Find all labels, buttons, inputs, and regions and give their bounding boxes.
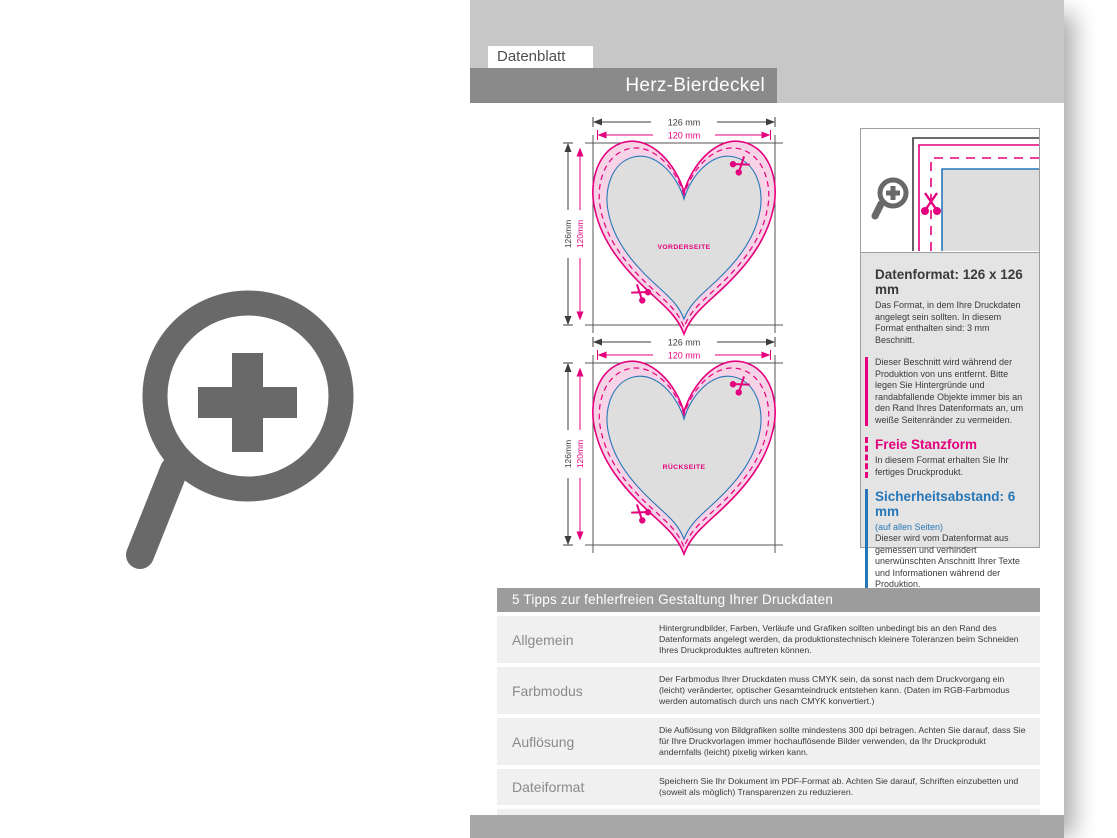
dim-width-inner-label: 120 mm [668, 131, 701, 141]
table-row: Farbmodus Der Farbmodus Ihrer Druckdaten… [497, 667, 1040, 714]
safety-heart [607, 376, 761, 539]
safety-heart [607, 156, 761, 319]
dim-height-outer-label: 126mm [563, 220, 573, 248]
tips-table: 5 Tipps zur fehlerfreien Gestaltung Ihre… [497, 588, 1040, 838]
datasheet-page: Datenblatt Herz-Bierdeckel [470, 0, 1064, 838]
zoom-plus-icon [100, 285, 360, 585]
zoom-plus-small-icon [869, 175, 913, 221]
datenblatt-tab: Datenblatt [488, 46, 593, 68]
sicherheitsabstand-note: Sicherheitsabstand: 6 mm (auf allen Seit… [865, 489, 1027, 591]
row-text: Speichern Sie Ihr Dokument im PDF-Format… [659, 769, 1040, 805]
row-label: Farbmodus [497, 683, 659, 699]
table-row: Auflösung Die Auflösung von Bildgrafiken… [497, 718, 1040, 765]
datenformat-title: Datenformat: 126 x 126 mm [875, 267, 1027, 297]
beschnitt-note: Dieser Beschnitt wird während der Produk… [865, 357, 1027, 426]
dim-height-inner-label: 120mm [575, 440, 585, 468]
back-side-label: RÜCKSEITE [663, 462, 706, 471]
tips-table-header: 5 Tipps zur fehlerfreien Gestaltung Ihre… [497, 588, 1040, 612]
corner-detail-view [861, 129, 1039, 253]
stanzform-note: Freie Stanzform In diesem Format erhalte… [865, 437, 1027, 478]
format-info-text: Datenformat: 126 x 126 mm Das Format, in… [861, 253, 1039, 547]
page-title: Herz-Bierdeckel [470, 68, 777, 103]
row-text: Der Farbmodus Ihrer Druckdaten muss CMYK… [659, 667, 1040, 714]
table-row: Dateiformat Speichern Sie Ihr Dokument i… [497, 769, 1040, 805]
row-label: Auflösung [497, 734, 659, 750]
format-info-box: Datenformat: 126 x 126 mm Das Format, in… [860, 128, 1040, 548]
row-label: Dateiformat [497, 779, 659, 795]
front-diagram: 126 mm 120 mm 126mm [555, 112, 790, 350]
datenformat-text: Das Format, in dem Ihre Druckdaten angel… [875, 300, 1027, 346]
screenshot-stage: Datenblatt Herz-Bierdeckel [0, 0, 1117, 838]
dim-height-inner-label: 120mm [575, 220, 585, 248]
sicherheitsabstand-sub: (auf allen Seiten) [875, 522, 1027, 532]
dim-width-inner-label: 120 mm [668, 351, 701, 361]
row-text: Die Auflösung von Bildgrafiken sollte mi… [659, 718, 1040, 765]
dim-height-outer-label: 126mm [563, 440, 573, 468]
dim-width-outer-label: 126 mm [668, 338, 701, 348]
row-label: Allgemein [497, 632, 659, 648]
back-diagram: 126 mm 120 mm 126mm 120mm RÜCKSEITE [555, 332, 790, 570]
table-row: Allgemein Hintergrundbilder, Farben, Ver… [497, 616, 1040, 663]
sicherheitsabstand-title: Sicherheitsabstand: 6 mm [875, 489, 1027, 519]
footer-band [470, 815, 1064, 838]
dim-width-outer-label: 126 mm [668, 118, 701, 128]
row-text: Hintergrundbilder, Farben, Verläufe und … [659, 616, 1040, 663]
stanzform-title: Freie Stanzform [875, 437, 1027, 452]
front-side-label: VORDERSEITE [657, 244, 710, 251]
